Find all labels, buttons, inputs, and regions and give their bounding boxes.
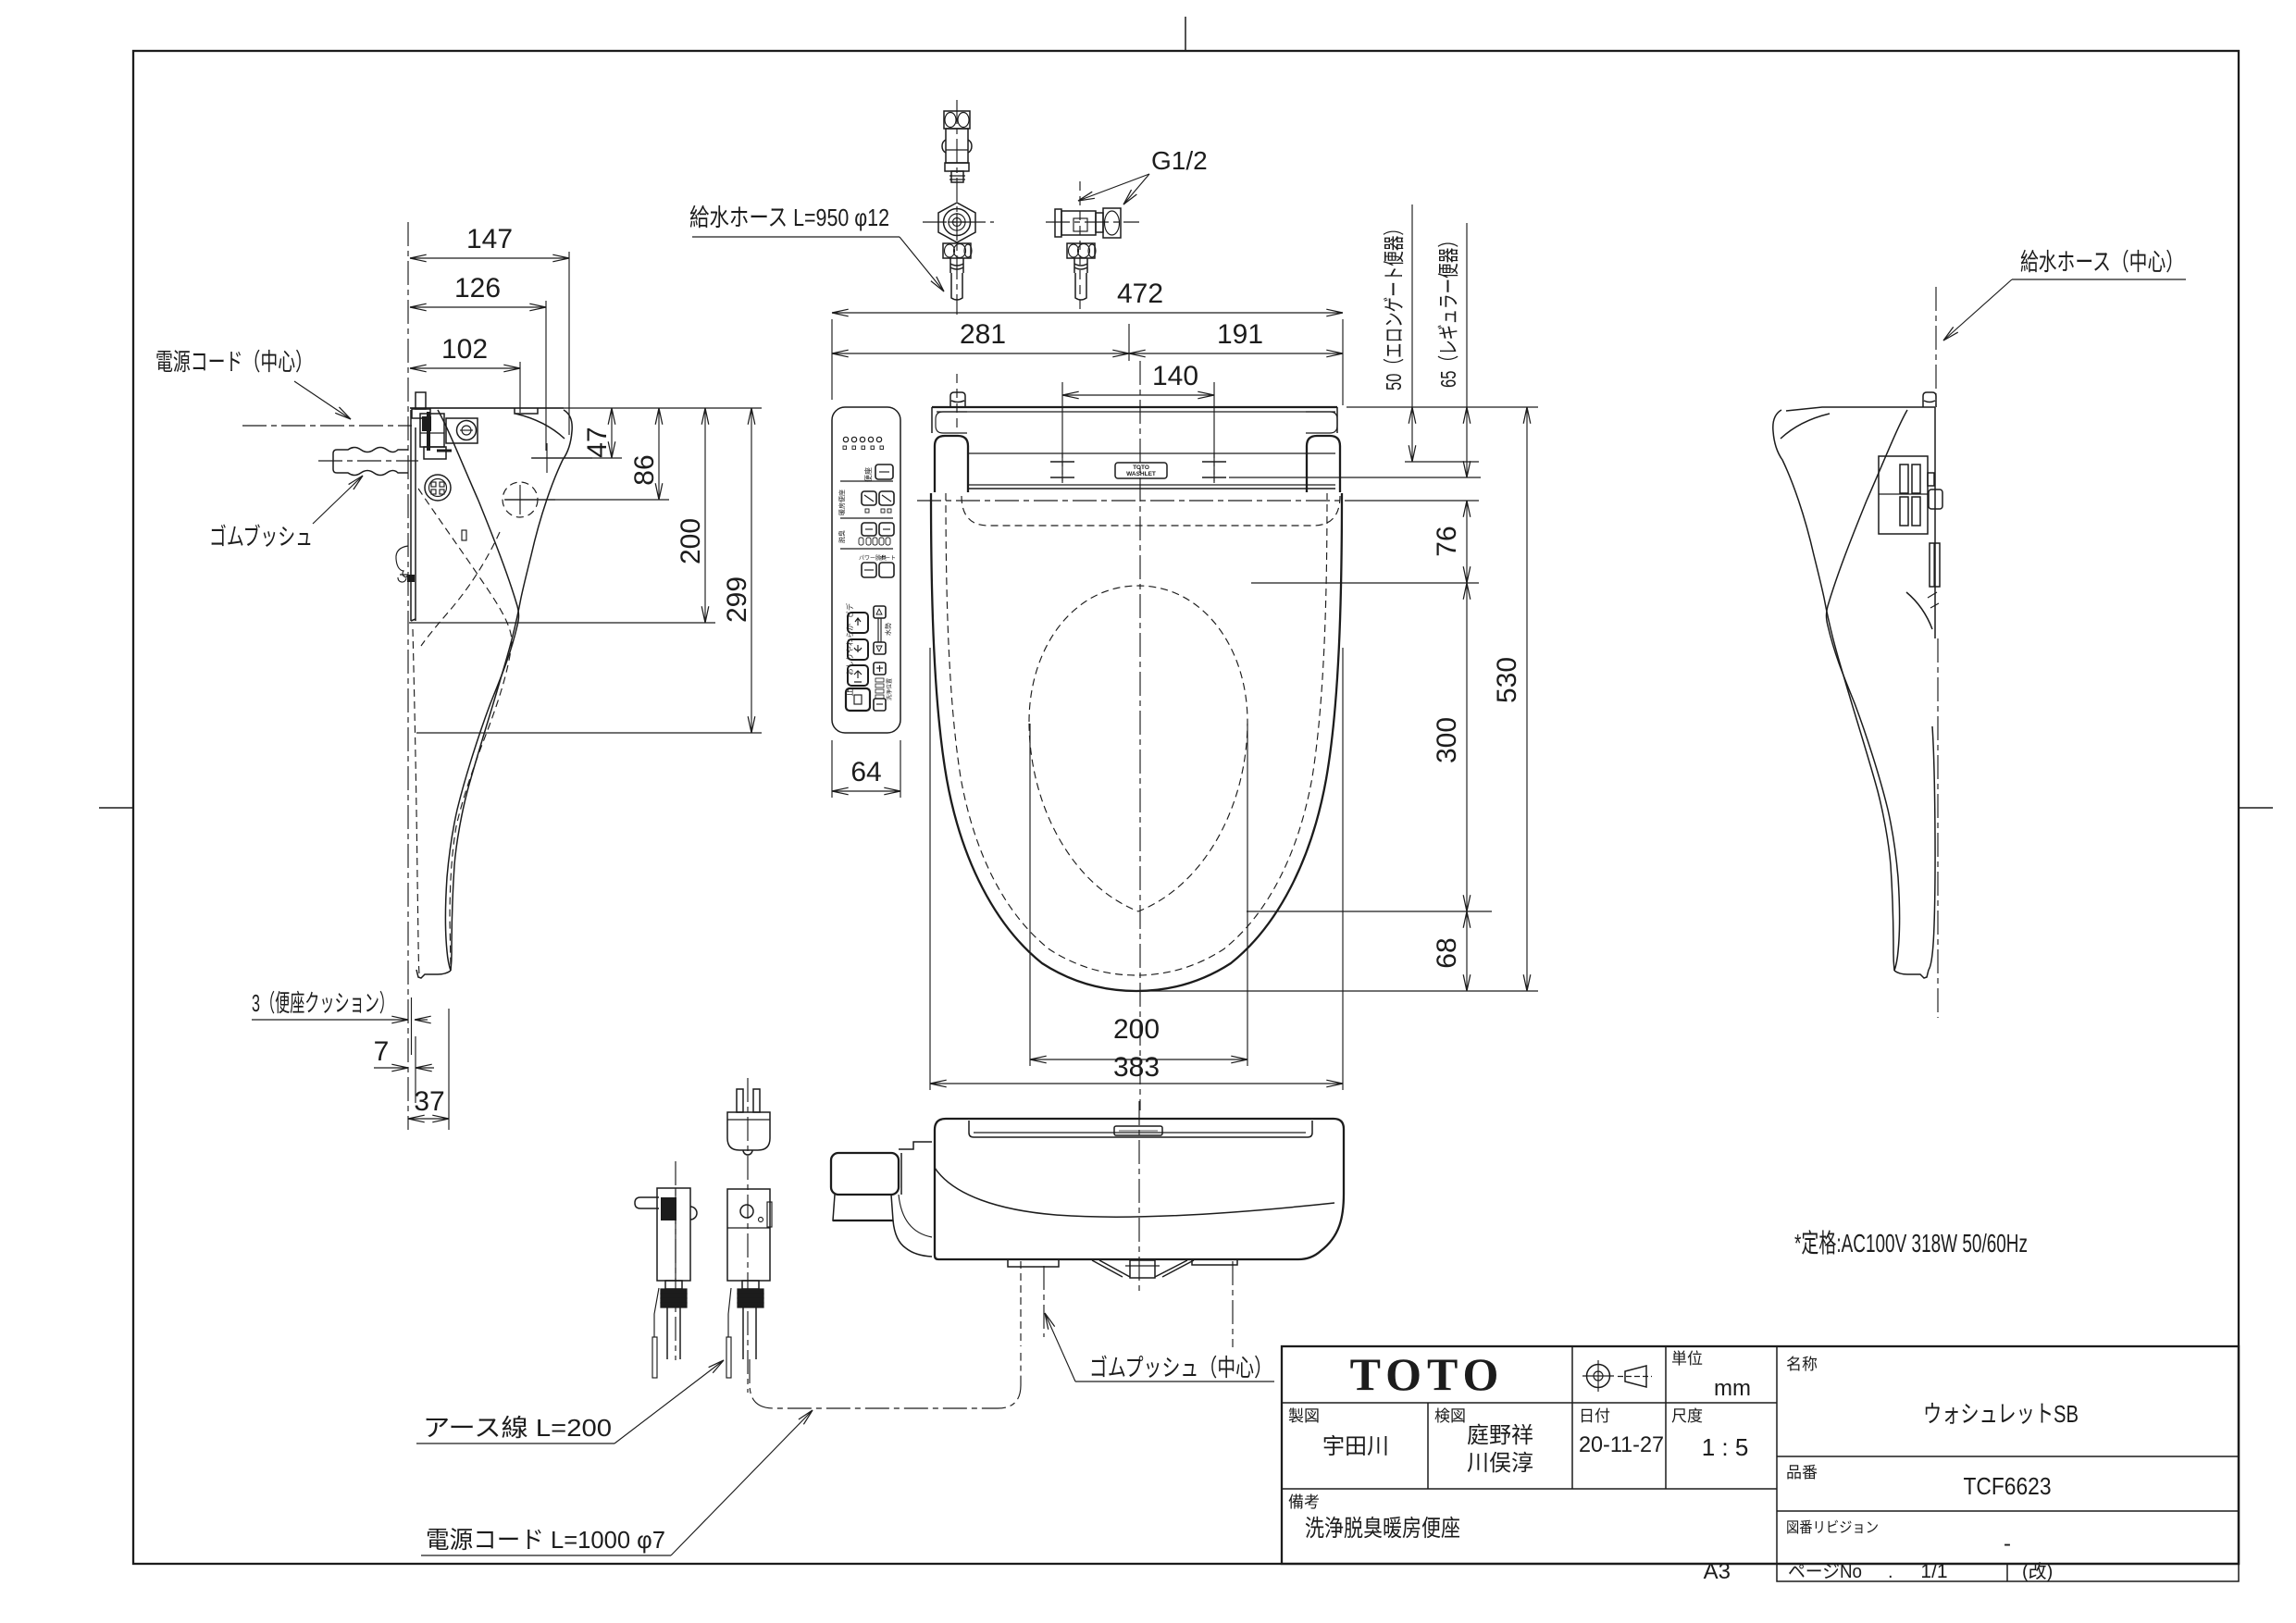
svg-text:20-11-27: 20-11-27 [1579,1432,1664,1457]
svg-text:ウォシュレットSB: ウォシュレットSB [1923,1400,2079,1428]
svg-text:*定格:AC100V 318W 50/60Hz: *定格:AC100V 318W 50/60Hz [1794,1229,2028,1258]
svg-text:ゴムブッシュ: ゴムブッシュ [209,523,313,551]
svg-text:庭野祥: 庭野祥 [1467,1423,1533,1448]
svg-text:472: 472 [1117,279,1163,309]
svg-text:37: 37 [414,1086,444,1117]
svg-text:300: 300 [1432,717,1462,763]
svg-text:宇田川: 宇田川 [1322,1434,1389,1459]
svg-text:洗浄脱臭暖房便座: 洗浄脱臭暖房便座 [1305,1516,1460,1542]
svg-text:TOTO: TOTO [1133,465,1149,471]
svg-text:日付: 日付 [1579,1407,1610,1425]
svg-text:140: 140 [1152,361,1198,391]
svg-text:備考: 備考 [1288,1493,1320,1511]
svg-text:-: - [2004,1531,2011,1556]
svg-text:暖房便座: 暖房便座 [838,489,846,515]
svg-text:尺度: 尺度 [1671,1407,1703,1425]
svg-text:脱臭: 脱臭 [838,530,846,543]
svg-text:.: . [1888,1562,1893,1582]
svg-text:電源コード L=1000 φ7: 電源コード L=1000 φ7 [426,1526,665,1554]
svg-text:ゴムプッシュ（中心）: ゴムプッシュ（中心） [1089,1354,1272,1381]
svg-text:アース線 L=200: アース線 L=200 [423,1414,612,1442]
svg-text:200: 200 [676,518,706,564]
svg-text:200: 200 [1113,1014,1160,1045]
svg-text:65（レギュラー便器）: 65（レギュラー便器） [1436,232,1460,388]
svg-text:530: 530 [1492,657,1522,703]
svg-text:64: 64 [850,757,881,787]
svg-text:川俣淳: 川俣淳 [1467,1451,1533,1476]
svg-text:製図: 製図 [1288,1407,1320,1425]
svg-text:TOTO: TOTO [1350,1348,1505,1400]
svg-text:給水ホース L=950 φ12: 給水ホース L=950 φ12 [689,204,889,231]
svg-text:便座: 便座 [863,467,873,482]
svg-text:ページNo: ページNo [1788,1562,1862,1582]
svg-text:(改): (改) [2022,1561,2053,1582]
svg-text:オート: オート [879,555,896,562]
svg-text:68: 68 [1432,937,1462,968]
svg-text:図番リビジョン: 図番リビジョン [1786,1519,1879,1536]
svg-text:水勢: 水勢 [884,623,892,636]
svg-text:47: 47 [582,427,613,457]
svg-text:299: 299 [722,576,752,623]
svg-text:102: 102 [441,334,488,365]
svg-text:281: 281 [960,319,1006,350]
svg-text:147: 147 [466,224,513,254]
svg-text:mm: mm [1714,1376,1751,1401]
svg-text:383: 383 [1113,1052,1160,1083]
svg-text:86: 86 [629,454,660,485]
svg-text:WASHLET: WASHLET [1126,471,1156,477]
svg-text:1/1: 1/1 [1920,1561,1947,1582]
svg-text:単位: 単位 [1671,1350,1703,1368]
svg-text:A3: A3 [1704,1559,1731,1584]
svg-text:7: 7 [374,1036,390,1067]
svg-text:給水ホース（中心）: 給水ホース（中心） [2020,248,2184,276]
svg-text:50（エロンゲート便器）: 50（エロンゲート便器） [1382,220,1406,390]
svg-text:洗浄位置: 洗浄位置 [886,678,893,700]
svg-text:ビデ: ビデ [845,603,854,618]
svg-text:検図: 検図 [1434,1407,1466,1425]
svg-text:電源コード（中心）: 電源コード（中心） [155,348,313,376]
svg-text:G1/2: G1/2 [1151,146,1208,175]
svg-text:品番: 品番 [1786,1464,1818,1481]
svg-text:1 : 5: 1 : 5 [1702,1433,1749,1461]
svg-text:3（便座クッション）: 3（便座クッション） [252,989,394,1017]
svg-text:191: 191 [1217,319,1263,350]
svg-text:76: 76 [1432,526,1462,556]
svg-text:TCF6623: TCF6623 [1964,1472,2052,1500]
svg-text:名称: 名称 [1786,1356,1818,1373]
svg-text:126: 126 [454,273,501,304]
